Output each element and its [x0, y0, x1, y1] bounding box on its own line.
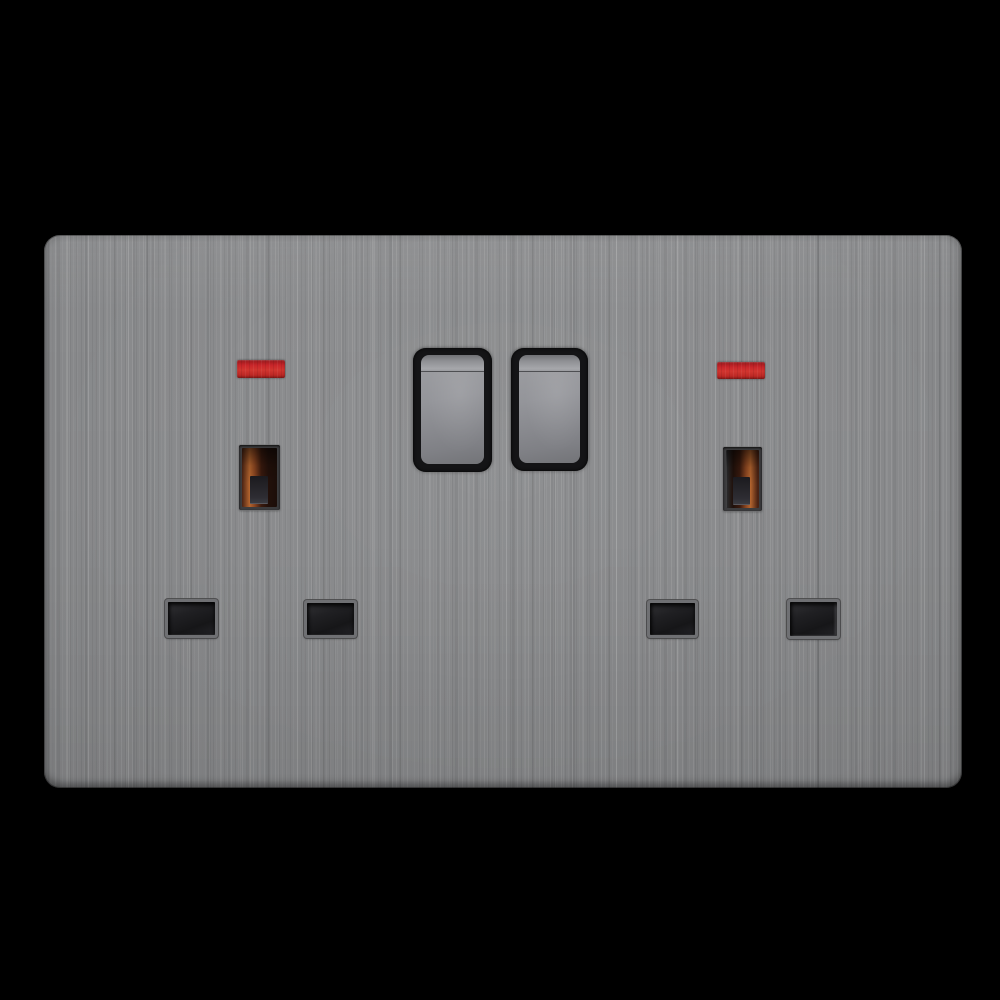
- neutral-pin-hole-right-socket: [787, 599, 840, 639]
- neon-indicator-right: [717, 362, 765, 379]
- rocker-switch-left: [413, 348, 492, 472]
- earth-slot-cavity-left: [242, 448, 277, 507]
- product-photo-scene: [0, 0, 1000, 1000]
- line-pin-hole-left-socket: [165, 599, 218, 638]
- rocker-right: [519, 355, 580, 463]
- rocker-left: [421, 355, 484, 464]
- rocker-left-front-face: [421, 372, 484, 464]
- rocker-switch-right: [511, 348, 588, 471]
- neutral-pin-cavity-right-socket: [790, 602, 837, 636]
- line-pin-cavity-right-socket: [650, 603, 695, 635]
- rocker-right-front-face: [519, 372, 580, 463]
- line-pin-cavity-left-socket: [168, 602, 215, 635]
- earth-pin-slot-left: [239, 445, 280, 510]
- rocker-right-top-face: [519, 355, 580, 372]
- earth-slot-cavity-right: [726, 450, 759, 508]
- neutral-pin-hole-left-socket: [304, 600, 357, 638]
- safety-shutter-left: [250, 476, 268, 504]
- neutral-pin-cavity-left-socket: [307, 603, 354, 635]
- safety-shutter-right: [733, 477, 750, 505]
- neon-indicator-left: [237, 360, 285, 378]
- rocker-left-top-face: [421, 355, 484, 372]
- socket-faceplate: [44, 235, 962, 788]
- plate-sheen-overlay: [44, 235, 962, 788]
- line-pin-hole-right-socket: [647, 600, 698, 638]
- earth-pin-slot-right: [723, 447, 762, 511]
